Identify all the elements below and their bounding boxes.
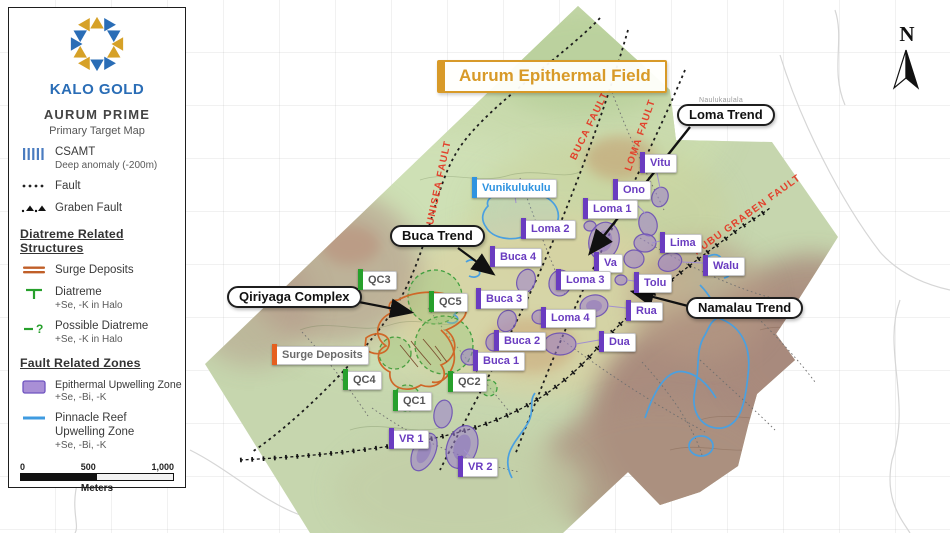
target-flag-vr-1: VR 1 <box>389 428 429 449</box>
target-flag-label: QC5 <box>434 293 468 312</box>
scale-bar: 0 500 1,000 Meters <box>20 462 174 494</box>
kalo-gold-logo-icon <box>66 14 128 74</box>
target-flag-label: Buca 2 <box>499 332 546 351</box>
target-flag-label: Loma 3 <box>561 271 611 290</box>
legend-item-fault: Fault <box>20 180 174 193</box>
place-label: Naulukaulala <box>699 97 743 104</box>
scale-bar-graphic <box>20 473 174 481</box>
brand-block: KALO GOLD <box>20 14 174 98</box>
target-flag-label: Buca 3 <box>481 290 528 309</box>
target-flag-vunikulukulu: Vunikulukulu <box>472 177 557 198</box>
target-flag-qc1: QC1 <box>393 390 432 411</box>
target-flag-label: Buca 1 <box>478 352 525 371</box>
legend-label: Possible Diatreme <box>55 320 148 333</box>
target-flag-label: Loma 2 <box>526 220 576 239</box>
target-flag-label: Tolu <box>639 274 672 293</box>
callout-qiriyaga-complex: Qiriyaga Complex <box>227 286 362 308</box>
legend-label: Graben Fault <box>55 202 122 215</box>
legend-item-pinnacle-reef-zone: Pinnacle Reef Upwelling Zone +Se, -Bi, -… <box>20 412 174 450</box>
surge-deposits-icon <box>20 264 47 275</box>
target-flag-qc4: QC4 <box>343 369 382 390</box>
target-flag-label: QC4 <box>348 371 382 390</box>
callout-loma-trend: Loma Trend <box>677 104 775 126</box>
legend-sublabel: +Se, -K in Halo <box>55 300 123 311</box>
legend-label: Fault <box>55 180 81 193</box>
callout-buca-trend: Buca Trend <box>390 225 485 247</box>
legend-label: CSAMT <box>55 146 157 159</box>
aurum-target-map: VUNISEA FAULT BUCA FAULT LOMA FAULT NUBU… <box>0 0 950 533</box>
graben-fault-icon <box>20 202 47 214</box>
target-flag-label: Vunikulukulu <box>477 179 557 198</box>
legend-label: Surge Deposits <box>55 264 134 277</box>
svg-text:?: ? <box>36 322 43 335</box>
target-flag-rua: Rua <box>626 300 663 321</box>
csamt-icon <box>20 146 47 161</box>
callout-namalau-trend: Namalau Trend <box>686 297 803 319</box>
target-flag-label: Lima <box>665 234 702 253</box>
target-flag-label: QC2 <box>453 373 487 392</box>
legend-heading-diatreme: Diatreme Related Structures <box>20 227 174 255</box>
target-flag-surge-deposits: Surge Deposits <box>272 344 369 365</box>
legend-label: Epithermal Upwelling Zone <box>55 379 182 391</box>
target-flag-qc3: QC3 <box>358 269 397 290</box>
pinnacle-reef-icon <box>20 412 47 423</box>
target-flag-label: Loma 1 <box>588 200 638 219</box>
target-flag-tolu: Tolu <box>634 272 672 293</box>
target-flag-qc5: QC5 <box>429 291 468 312</box>
target-flag-vr-2: VR 2 <box>458 456 498 477</box>
legend-subtitle: Primary Target Map <box>20 125 174 137</box>
target-flag-label: Surge Deposits <box>277 346 369 365</box>
legend-item-epithermal-zone: Epithermal Upwelling Zone +Se, -Bi, -K <box>20 379 174 403</box>
legend-item-possible-diatreme: ? Possible Diatreme +Se, -K in Halo <box>20 320 174 345</box>
legend-item-csamt: CSAMT Deep anomaly (-200m) <box>20 146 174 171</box>
target-flag-qc2: QC2 <box>448 371 487 392</box>
target-flag-label: Walu <box>708 257 745 276</box>
target-flag-dua: Dua <box>599 331 636 352</box>
scale-unit: Meters <box>20 483 174 494</box>
target-flag-label: Vitu <box>645 154 677 173</box>
possible-diatreme-icon: ? <box>20 320 47 335</box>
target-flag-loma-2: Loma 2 <box>521 218 576 239</box>
target-flag-buca-4: Buca 4 <box>490 246 542 267</box>
legend-sublabel: +Se, -K in Halo <box>55 334 148 345</box>
scale-tick-1000: 1,000 <box>151 462 174 472</box>
north-arrow-icon <box>894 50 918 88</box>
target-flag-label: VR 1 <box>394 430 429 449</box>
legend-item-diatreme: Diatreme +Se, -K in Halo <box>20 286 174 311</box>
map-title: Aurum Epithermal Field <box>437 60 667 93</box>
target-flag-loma-3: Loma 3 <box>556 269 611 290</box>
epithermal-zone-icon <box>20 379 47 394</box>
target-flag-walu: Walu <box>703 255 745 276</box>
legend-label: Diatreme <box>55 286 123 299</box>
legend-panel: KALO GOLD AURUM PRIME Primary Target Map… <box>8 7 186 488</box>
target-flag-lima: Lima <box>660 232 702 253</box>
diatreme-icon <box>20 286 47 301</box>
target-flag-label: QC1 <box>398 392 432 411</box>
target-flag-loma-1: Loma 1 <box>583 198 638 219</box>
fault-icon <box>20 180 47 191</box>
target-flag-ono: Ono <box>613 179 651 200</box>
legend-label: Pinnacle Reef Upwelling Zone <box>55 412 173 438</box>
legend-item-surge-deposits: Surge Deposits <box>20 264 174 277</box>
target-flag-label: Buca 4 <box>495 248 542 267</box>
legend-heading-fault-zones: Fault Related Zones <box>20 356 174 370</box>
legend-sublabel: Deep anomaly (-200m) <box>55 160 157 171</box>
target-flag-label: VR 2 <box>463 458 498 477</box>
target-flag-loma-4: Loma 4 <box>541 307 596 328</box>
target-flag-vitu: Vitu <box>640 152 677 173</box>
target-flag-label: Dua <box>604 333 636 352</box>
target-flag-label: Loma 4 <box>546 309 596 328</box>
target-flag-buca-1: Buca 1 <box>473 350 525 371</box>
legend-item-graben-fault: Graben Fault <box>20 202 174 215</box>
legend-sublabel: +Se, -Bi, -K <box>55 440 173 451</box>
scale-tick-0: 0 <box>20 462 25 472</box>
scale-tick-500: 500 <box>81 462 96 472</box>
target-flag-label: QC3 <box>363 271 397 290</box>
target-flag-label: Rua <box>631 302 663 321</box>
brand-name: KALO GOLD <box>20 81 174 98</box>
north-label: N <box>894 22 920 47</box>
target-flag-buca-3: Buca 3 <box>476 288 528 309</box>
target-flag-buca-2: Buca 2 <box>494 330 546 351</box>
legend-sublabel: +Se, -Bi, -K <box>55 392 182 403</box>
legend-title: AURUM PRIME <box>20 107 174 122</box>
